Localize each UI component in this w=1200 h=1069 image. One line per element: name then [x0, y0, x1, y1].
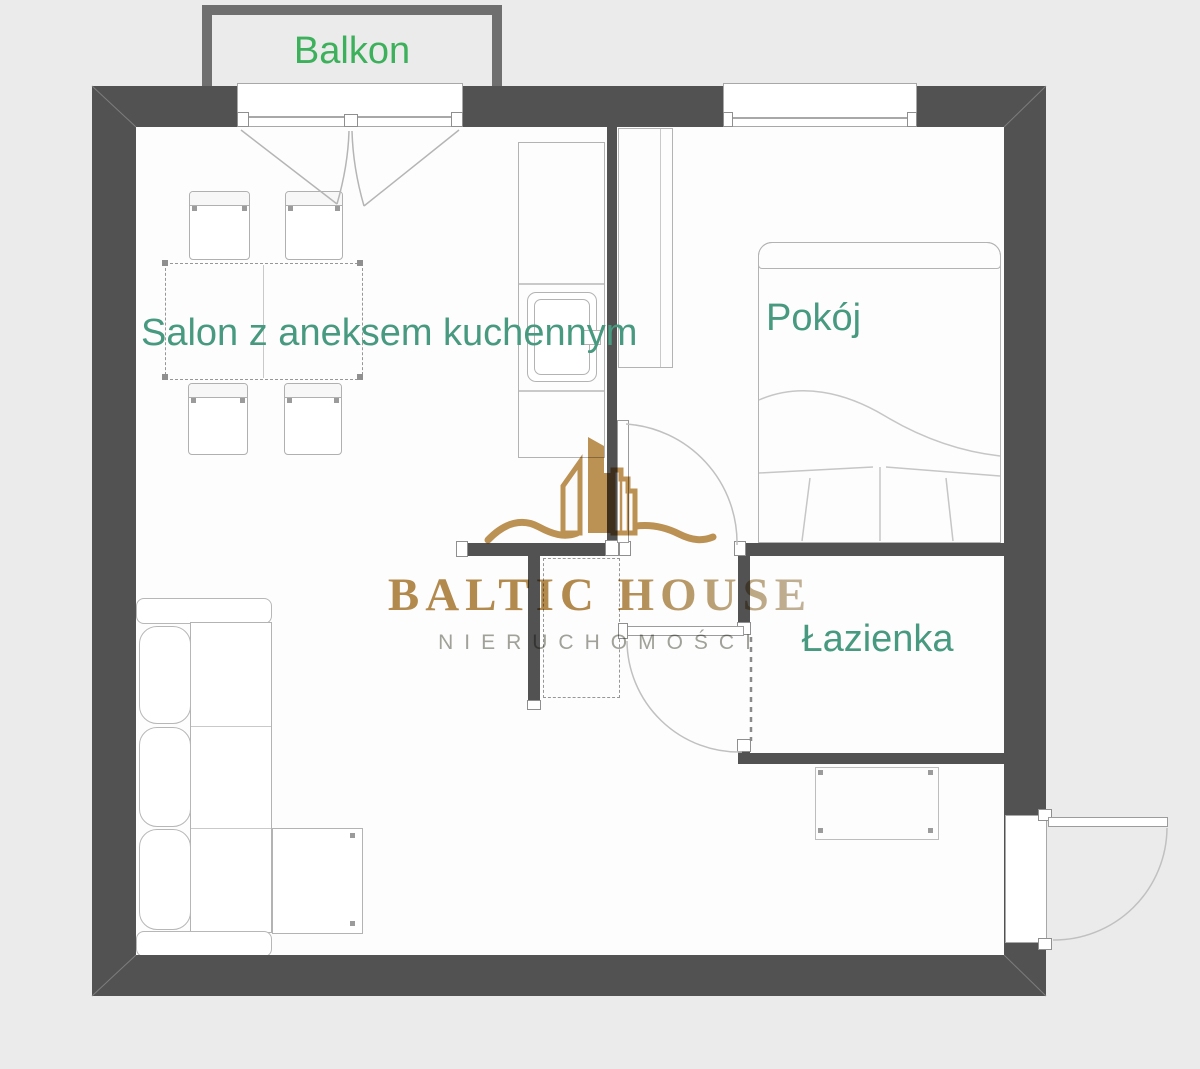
bathroom-door-leaf-cap	[618, 623, 628, 639]
living-room-label: Salon z aneksem kuchennym	[141, 314, 637, 352]
wall-bathroom-left-upper	[738, 554, 750, 629]
chair-back	[286, 192, 342, 206]
balcony-wall-right	[492, 5, 502, 86]
sofa-cushion	[139, 626, 191, 724]
sofa-cushion	[139, 727, 191, 827]
bedroom-label: Pokój	[766, 299, 861, 337]
entry-cabinet-dot	[928, 828, 933, 833]
chair	[285, 191, 343, 260]
bathroom-label: Łazienka	[795, 620, 960, 658]
counter-divider	[519, 390, 604, 392]
chair-dot	[191, 398, 196, 403]
chair	[284, 383, 342, 455]
chair-dot	[287, 398, 292, 403]
bedroom-window-jamb	[723, 112, 733, 127]
sofa-chaise	[272, 828, 363, 934]
chair-back	[189, 384, 247, 398]
entry-cabinet	[815, 767, 939, 840]
table-corner	[162, 260, 168, 266]
wall-cap	[527, 700, 541, 710]
bedroom-door-jamb	[619, 541, 631, 556]
entry-cabinet-dot	[818, 770, 823, 775]
chair	[189, 191, 250, 260]
entrance-door-arc	[1053, 828, 1167, 940]
table-corner	[162, 374, 168, 380]
balcony-door-mullion	[344, 114, 358, 127]
bedroom-door-leaf	[617, 420, 629, 543]
chair-dot	[240, 398, 245, 403]
chair-dot	[334, 398, 339, 403]
chair-back	[190, 192, 249, 206]
balcony-wall-top	[202, 5, 502, 15]
chaise-dot	[350, 833, 355, 838]
bed-body	[758, 242, 1001, 543]
table-corner	[357, 260, 363, 266]
bathroom-door-jamb	[737, 739, 751, 752]
chair	[188, 383, 248, 455]
sofa-seat	[190, 622, 272, 933]
balcony-label: Balkon	[212, 32, 492, 70]
wardrobe-door-line	[660, 129, 661, 367]
sofa-armrest-bottom	[136, 931, 272, 957]
sofa-armrest-top	[136, 598, 272, 624]
bedroom-window-jamb	[907, 112, 917, 127]
wall-outer-left	[92, 86, 136, 996]
sofa-seam	[191, 726, 271, 727]
balcony-door-jamb	[237, 112, 249, 127]
balcony-wall-left	[202, 5, 212, 86]
wall-hall-vertical	[528, 554, 540, 708]
entrance-opening	[1005, 815, 1047, 943]
sofa-seam	[191, 828, 271, 829]
sofa-cushion	[139, 829, 191, 930]
wall-cap	[456, 541, 468, 557]
chair-dot	[242, 206, 247, 211]
entrance-jamb	[1038, 938, 1052, 950]
hall-cabinet	[543, 558, 620, 698]
entry-cabinet-dot	[928, 770, 933, 775]
bedroom-door-jamb	[734, 541, 746, 556]
bedroom-window-sill	[726, 117, 914, 119]
floor-plan: Balkon	[0, 0, 1200, 1069]
chair-dot	[192, 206, 197, 211]
bedroom-window	[723, 83, 917, 127]
counter-divider	[519, 283, 604, 285]
chair-back	[285, 384, 341, 398]
wall-outer-bottom	[92, 955, 1046, 996]
entrance-door-leaf	[1048, 817, 1168, 827]
chair-dot	[288, 206, 293, 211]
chaise-dot	[350, 921, 355, 926]
balcony-door-jamb	[451, 112, 463, 127]
table-corner	[357, 374, 363, 380]
chair-dot	[335, 206, 340, 211]
bed-headboard	[758, 242, 1001, 269]
bathroom-door-leaf	[622, 626, 744, 636]
wall-bathroom-bottom	[738, 753, 1004, 764]
entry-cabinet-dot	[818, 828, 823, 833]
wall-bedroom-bathroom	[740, 543, 1004, 556]
